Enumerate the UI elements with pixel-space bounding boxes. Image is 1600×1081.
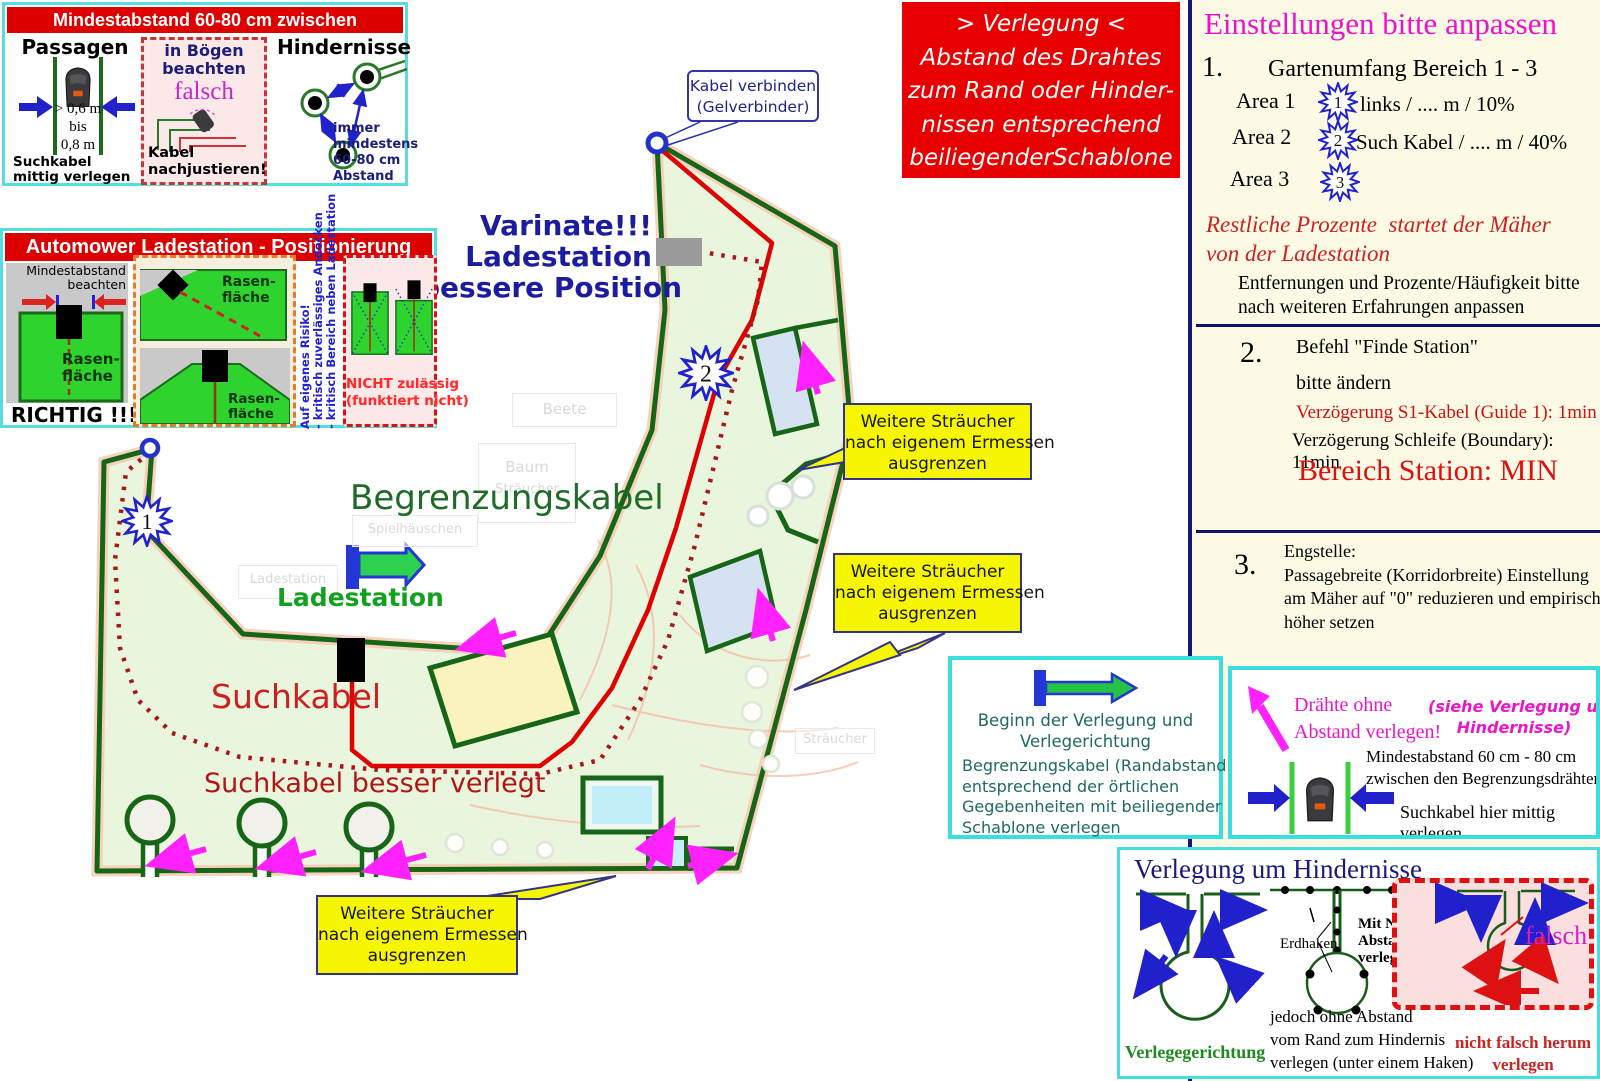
bg-label-spielhaus: Spielhäuschen bbox=[352, 515, 478, 547]
nicht-zulaessig-label: NICHT zulässig (funktiert nicht) bbox=[346, 376, 434, 410]
panel-divider-1 bbox=[1196, 324, 1600, 327]
panel-area2-value: Such Kabel / .... m / 40% bbox=[1356, 130, 1567, 155]
verlegerichtung-label: Verlegegerichtung bbox=[1125, 1042, 1265, 1063]
panel-area2-label: Area 2 bbox=[1232, 124, 1291, 150]
boegen-falsch: falsch bbox=[144, 78, 264, 106]
richtig-label: RICHTIG !!! bbox=[11, 403, 137, 427]
panel-bereich-station: Bereich Station: MIN bbox=[1298, 454, 1558, 488]
suchkabel-besser-label: Suchkabel besser verlegt bbox=[204, 768, 545, 799]
panel-divider-2 bbox=[1196, 530, 1600, 533]
richtig-rasen-label: Rasen- fläche bbox=[62, 351, 120, 385]
nicht-falsch-note: nicht falsch herum verlegen bbox=[1448, 1032, 1598, 1076]
svg-text:2: 2 bbox=[700, 361, 712, 387]
arrow-right-icon bbox=[19, 96, 53, 118]
richtig-panel: Mindestabstand beachten Rasen- fläche bbox=[6, 263, 128, 403]
risiko-rasen-bottom: Rasen- fläche bbox=[228, 392, 280, 422]
draehte-such-text: Suchkabel hier mittig verlegen bbox=[1400, 802, 1596, 839]
box-mindestabstand: Mindestabstand 60-80 cm zwischen Begrenz… bbox=[2, 2, 408, 186]
box-draehte-ohne-abstand: Drähte ohne Abstand verlegen! (siehe Ver… bbox=[1228, 666, 1600, 839]
panel-area1-star: 1 bbox=[1318, 82, 1358, 122]
connector-ring-left bbox=[142, 440, 158, 456]
bg-label-baum-line1: Baum bbox=[479, 458, 575, 476]
map-area-star-2: 2 bbox=[678, 345, 734, 401]
passagen-dist-2: bis bbox=[51, 119, 105, 136]
svg-text:1: 1 bbox=[1334, 93, 1343, 112]
panel-area2-star: 2 bbox=[1318, 120, 1358, 160]
box-ladestation-positionierung: Automower Ladestation - Positionierung M… bbox=[0, 228, 437, 428]
panel-item3-text: Engstelle: Passagebreite (Korridorbreite… bbox=[1284, 540, 1600, 634]
charging-station bbox=[337, 638, 365, 682]
panel-area3-star: 3 bbox=[1320, 162, 1360, 202]
risiko-panel: Rasen- fläche Rasen- fläche bbox=[133, 255, 296, 427]
passagen-dist-1: > 0,6 m bbox=[51, 101, 105, 118]
pool-water bbox=[592, 786, 652, 824]
panel-befehl: Befehl "Finde Station" bbox=[1296, 336, 1478, 359]
arrow-left-icon bbox=[1350, 784, 1394, 812]
boegen-note: Kabel nachjustieren! bbox=[148, 145, 267, 179]
verlegung-note-box: > Verlegung < Abstand des Drahtes zum Ra… bbox=[902, 2, 1180, 178]
risiko-vertical-note: Auf eigenes Risiko! - kritisch zuverläss… bbox=[299, 255, 341, 429]
box-mindestabstand-title: Mindestabstand 60-80 cm zwischen Begrenz… bbox=[7, 7, 403, 33]
beginn-text-2: Begrenzungskabel (Randabstand) entsprech… bbox=[962, 756, 1233, 838]
jedoch-note: jedoch ohne Abstand vom Rand zum Hindern… bbox=[1270, 1005, 1473, 1074]
draehte-min-text: Mindestabstand 60 cm - 80 cm zwischen de… bbox=[1366, 746, 1600, 790]
hindernisse-heading: Hindernisse bbox=[277, 35, 409, 59]
erdhaken-label: Erdhaken bbox=[1280, 936, 1337, 953]
passagen-dist-3: 0,8 m bbox=[51, 137, 105, 154]
svg-text:3: 3 bbox=[1336, 173, 1345, 192]
svg-text:2: 2 bbox=[1334, 131, 1343, 150]
panel-bitte-aendern: bitte ändern bbox=[1296, 372, 1391, 395]
verlege-richtung-icon bbox=[1024, 668, 1149, 708]
draehte-siehe-text: (siehe Verlegung um Hindernisse) bbox=[1428, 696, 1600, 738]
nicht-diagram-2 bbox=[393, 264, 435, 372]
hindernisse-note: immer mindestens 60-80 cm Abstand bbox=[333, 121, 418, 185]
arrow-right-icon bbox=[1248, 784, 1290, 812]
svg-text:1: 1 bbox=[141, 509, 152, 534]
boegen-panel: in Bögen beachten falsch Kabel nachjusti… bbox=[141, 37, 267, 185]
panel-item2-number: 2. bbox=[1240, 336, 1263, 370]
variante-note: Varinate!!! Ladestation bessere Position bbox=[420, 210, 652, 303]
bg-label-beete: Beete bbox=[512, 393, 617, 427]
mower-icon bbox=[1307, 778, 1334, 821]
panel-restliche-note: Restliche Prozente startet der Mäher von… bbox=[1206, 210, 1551, 268]
richtig-diagram bbox=[6, 291, 128, 403]
panel-area3-label: Area 3 bbox=[1230, 166, 1289, 192]
passagen-note: Suchkabel mittig verlegen bbox=[13, 155, 130, 185]
richtig-note: Mindestabstand beachten bbox=[26, 264, 126, 292]
boegen-heading: in Bögen beachten bbox=[144, 42, 264, 78]
connector-ring-top bbox=[648, 134, 666, 152]
nicht-diagram-1 bbox=[349, 264, 391, 372]
panel-title: Einstellungen bitte anpassen bbox=[1204, 6, 1557, 42]
beginn-text-1: Beginn der Verlegung und Verlegerichtung bbox=[952, 710, 1219, 752]
panel-item1-heading: Gartenumfang Bereich 1 - 3 bbox=[1268, 56, 1537, 83]
panel-item3-number: 3. bbox=[1234, 548, 1257, 582]
panel-area1-value: links / .... m / 10% bbox=[1360, 92, 1515, 117]
mower-between-wires bbox=[1246, 758, 1396, 838]
draehte-magenta-text: Drähte ohne Abstand verlegen! bbox=[1294, 692, 1441, 746]
box-beginn-verlegung: Beginn der Verlegung und Verlegerichtung… bbox=[948, 656, 1223, 839]
bg-label-straeucher: Sträucher bbox=[795, 728, 875, 754]
map-area-star-1: 1 bbox=[121, 495, 173, 547]
suchkabel-label: Suchkabel bbox=[211, 677, 381, 716]
alt-station-rect bbox=[656, 238, 702, 266]
callout-straeucher-1: Weitere Sträucher nach eigenem Ermessen … bbox=[843, 403, 1032, 480]
callout-pointer-2 bbox=[668, 122, 738, 145]
panel-verzoegerung-s1: Verzögerung S1-Kabel (Guide 1): 1min bbox=[1296, 402, 1597, 424]
falsch-panel: falsch bbox=[1392, 878, 1594, 1010]
begrenzungskabel-label: Begrenzungskabel bbox=[350, 478, 664, 518]
kabel-verbinden-callout: Kabel verbinden (Gelverbinder) bbox=[687, 70, 819, 122]
obstacle-loop-correct bbox=[1128, 888, 1268, 1040]
magenta-arrow-icon bbox=[1242, 684, 1296, 758]
panel-entfernungen-note: Entfernungen und Prozente/Häufigkeit bit… bbox=[1238, 272, 1580, 320]
callout-straeucher-3: Weitere Sträucher nach eigenem Ermessen … bbox=[316, 895, 518, 975]
falsch-label: falsch bbox=[1525, 921, 1587, 951]
arrow-left-icon bbox=[101, 96, 135, 118]
ladestation-label: Ladestation bbox=[277, 583, 444, 612]
box-verlegung-hindernisse: Verlegung um Hindernisse Verlegegerichtu… bbox=[1117, 847, 1600, 1079]
callout-straeucher-2: Weitere Sträucher nach eigenem Ermessen … bbox=[833, 553, 1022, 633]
risiko-rasen-top: Rasen- fläche bbox=[222, 274, 276, 306]
panel-item1-number: 1. bbox=[1202, 52, 1223, 84]
panel-area1-label: Area 1 bbox=[1236, 88, 1295, 114]
nicht-zulaessig-panel: NICHT zulässig (funktiert nicht) bbox=[343, 255, 437, 427]
